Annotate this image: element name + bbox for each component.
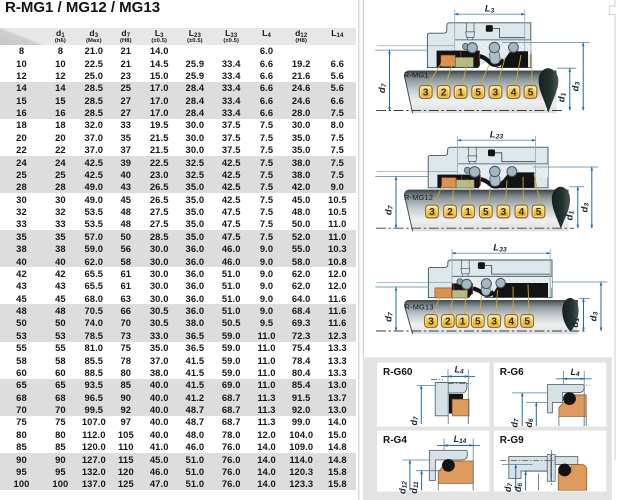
svg-text:3: 3 bbox=[491, 317, 497, 328]
svg-text:1: 1 bbox=[458, 88, 464, 99]
svg-text:R-G60: R-G60 bbox=[383, 367, 413, 378]
svg-text:3: 3 bbox=[423, 88, 429, 99]
svg-text:d7: d7 bbox=[384, 311, 395, 322]
svg-text:R-G4: R-G4 bbox=[383, 435, 407, 446]
svg-text:2: 2 bbox=[447, 207, 453, 218]
svg-text:4: 4 bbox=[509, 317, 515, 328]
svg-text:3: 3 bbox=[428, 317, 434, 328]
svg-text:d7: d7 bbox=[384, 204, 395, 215]
svg-text:R-G6: R-G6 bbox=[500, 367, 524, 378]
svg-text:R-MG12: R-MG12 bbox=[404, 193, 433, 202]
svg-text:5: 5 bbox=[528, 88, 534, 99]
svg-text:3: 3 bbox=[501, 207, 507, 218]
svg-text:5: 5 bbox=[483, 207, 489, 218]
svg-text:4: 4 bbox=[511, 88, 517, 99]
svg-text:R-MG1: R-MG1 bbox=[404, 71, 429, 80]
svg-text:d7: d7 bbox=[377, 82, 388, 93]
svg-text:R-G9: R-G9 bbox=[500, 435, 524, 446]
svg-text:L33: L33 bbox=[493, 242, 507, 253]
svg-text:d3: d3 bbox=[579, 203, 590, 213]
svg-text:R-MG13: R-MG13 bbox=[405, 303, 434, 312]
svg-text:L23: L23 bbox=[490, 130, 504, 141]
svg-text:d1: d1 bbox=[556, 92, 567, 102]
svg-text:d3: d3 bbox=[589, 312, 600, 322]
svg-text:3: 3 bbox=[493, 88, 499, 99]
svg-text:2: 2 bbox=[441, 88, 447, 99]
svg-text:5: 5 bbox=[524, 317, 530, 328]
svg-text:4: 4 bbox=[519, 207, 525, 218]
svg-text:L3: L3 bbox=[485, 4, 495, 15]
svg-text:5: 5 bbox=[475, 88, 481, 99]
svg-text:d3: d3 bbox=[571, 82, 582, 92]
svg-text:3: 3 bbox=[429, 207, 435, 218]
svg-text:2: 2 bbox=[445, 317, 451, 328]
svg-text:5: 5 bbox=[475, 317, 481, 328]
svg-text:1: 1 bbox=[465, 207, 471, 218]
svg-text:5: 5 bbox=[536, 207, 542, 218]
svg-text:1: 1 bbox=[460, 317, 466, 328]
